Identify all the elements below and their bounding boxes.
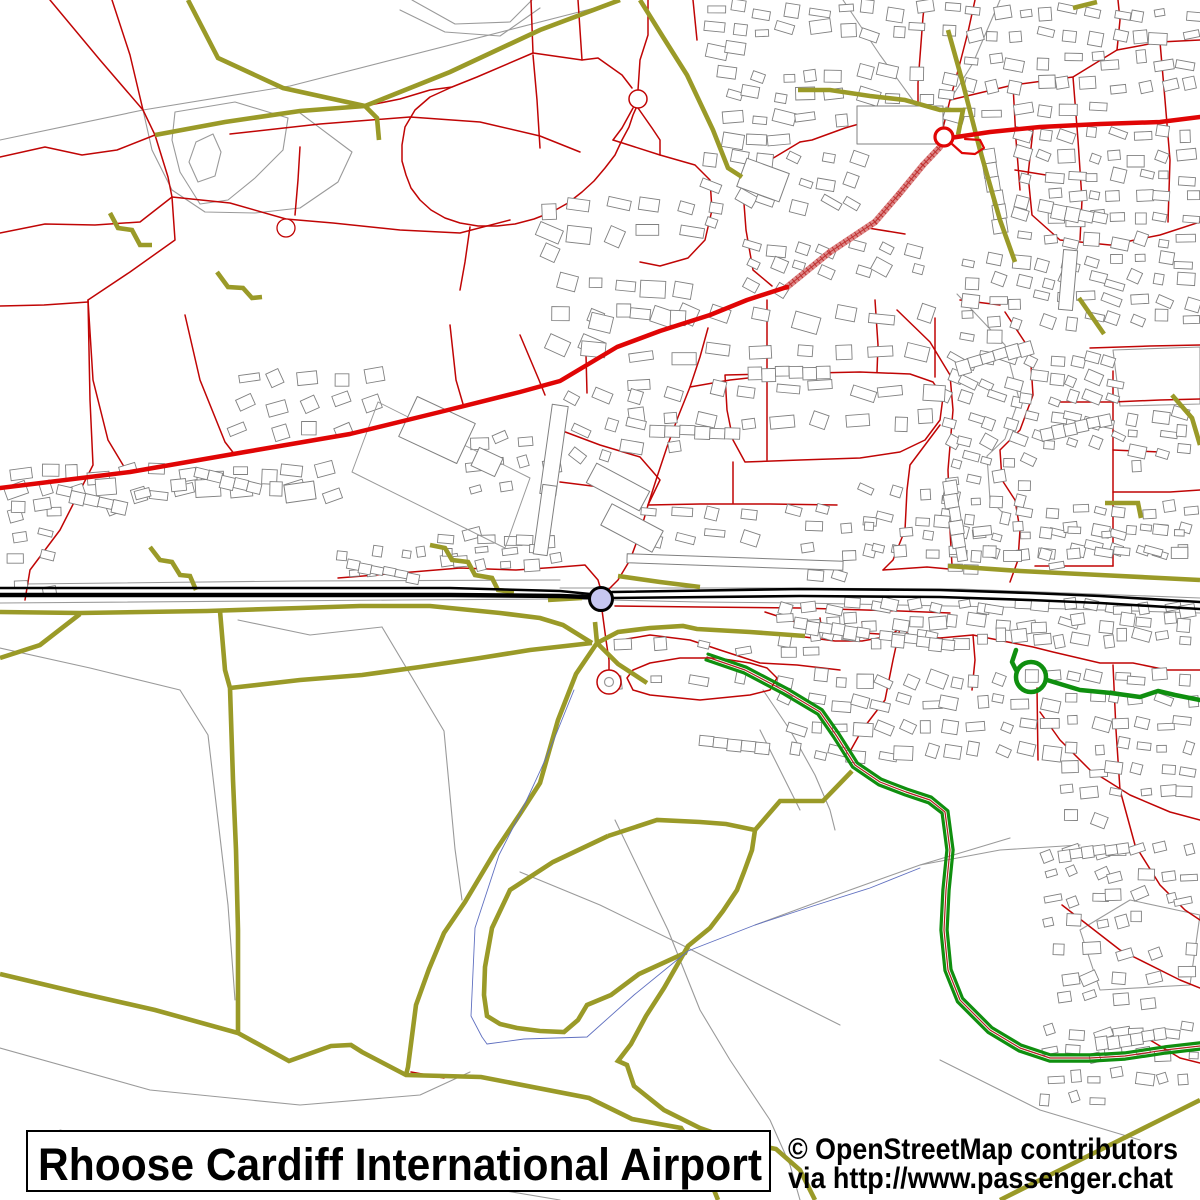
svg-text:Rhoose Cardiff International A: Rhoose Cardiff International Airport (38, 1139, 762, 1190)
svg-text:via http://www.passenger.chat: via http://www.passenger.chat (788, 1162, 1173, 1195)
